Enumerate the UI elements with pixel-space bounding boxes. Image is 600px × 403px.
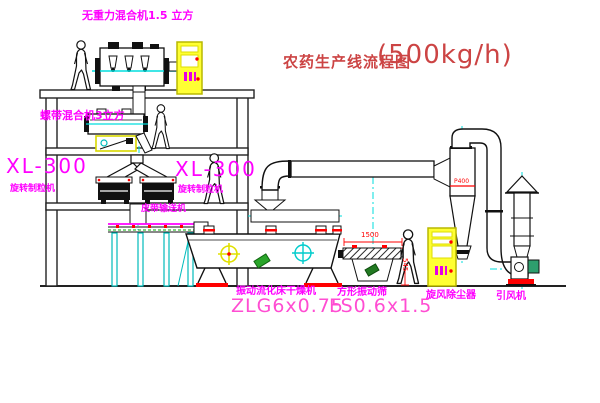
cyclone-tag: P400: [454, 179, 469, 185]
label-granulator-left-name: 旋转制粒机: [10, 185, 55, 194]
exhaust-stack: [505, 176, 539, 257]
cad-canvas: 农药生产线流程图 (500kg/h) 无重力混合机1.5 立方 螺带混合机3立方…: [0, 0, 600, 403]
label-gravity-mixer: 无重力混合机1.5 立方: [82, 10, 193, 21]
label-ribbon-mixer: 螺带混合机3立方: [40, 110, 125, 121]
exhaust-duct: [291, 161, 434, 177]
pipe-flange: [485, 210, 503, 213]
label-screen-model: FS0.6x1.5: [329, 297, 432, 316]
dimension-length: 1500: [361, 232, 379, 239]
granulator-right-machine: [140, 177, 176, 204]
label-fan: 引风机: [496, 292, 526, 302]
label-granulator-right-model: XL-300: [175, 159, 257, 179]
control-cabinet-right: [428, 228, 456, 286]
dimension-height: 545: [401, 258, 408, 271]
control-cabinet-roof: [177, 42, 202, 94]
label-granulator-left-model: XL-300: [6, 156, 88, 176]
granulator-left-machine: [96, 177, 132, 204]
label-granulator-right-name: 旋转制粒机: [178, 186, 223, 195]
person-figure-level2: [152, 105, 170, 149]
drop-pipe-1: [133, 92, 145, 116]
induced-draft-fan-machine: [506, 257, 539, 286]
label-cyclone: 旋风除尘器: [426, 291, 476, 301]
gravity-mixer: [92, 42, 189, 92]
person-figure-roof: [71, 41, 91, 90]
page-title-capacity: (500kg/h): [377, 40, 513, 70]
label-dryer-model: ZLG6x0.75: [231, 297, 344, 316]
label-belt-conveyor: 皮带输送机: [141, 205, 186, 214]
